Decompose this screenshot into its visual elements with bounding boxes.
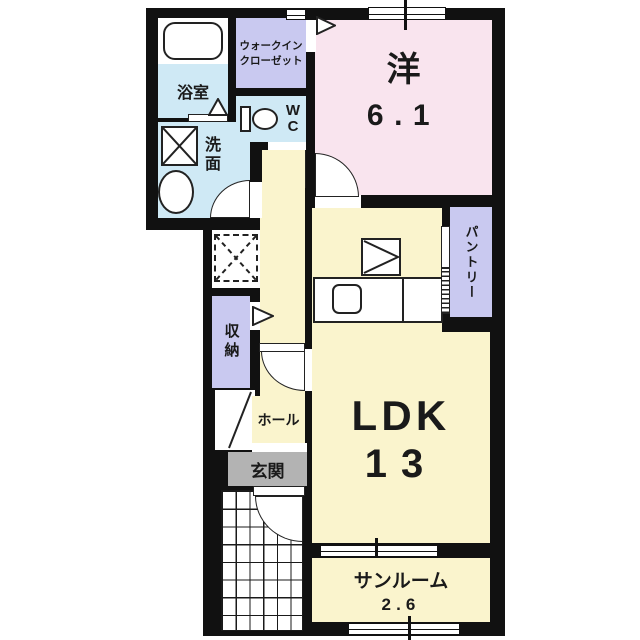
ldk-label-block: LDK 13 [312, 384, 490, 494]
sunroom-window-tick [408, 616, 411, 640]
entry-door-leaf [253, 486, 305, 496]
refrigerator-icon [361, 238, 401, 276]
entrance-label: 玄関 [251, 457, 285, 482]
sunroom-size: 2.6 [382, 595, 421, 615]
toilet-tank-icon [240, 106, 251, 132]
closet-doorway [306, 20, 316, 52]
western-room-label: 洋 [387, 42, 421, 91]
ldk-sunroom-window [320, 545, 438, 557]
walk-in-closet-label-1: ウォークイン [240, 38, 303, 53]
closet-folding-door-icon [316, 16, 336, 35]
storage-folding-door-icon [252, 306, 274, 326]
bathroom-folding-door-icon [208, 98, 228, 116]
washroom-doorway [250, 182, 262, 218]
toilet-label-c: C [288, 119, 299, 135]
room-walk-in-closet: ウォークイン クローゼット [236, 18, 306, 88]
western-room-size: 6.1 [367, 99, 440, 133]
sunroom-window [348, 623, 460, 635]
washing-machine-pan-icon [161, 126, 198, 166]
room-hall: ホール [252, 396, 305, 443]
bathtub-icon [163, 22, 223, 60]
pantry-label: パントリー [462, 225, 481, 300]
entrance-step [252, 443, 307, 452]
hall-label: ホール [258, 410, 300, 430]
toilet-bowl-icon [252, 108, 278, 130]
western-room-window-tick [404, 0, 407, 30]
closet-small-window [286, 9, 306, 20]
kitchen-sink-icon [332, 284, 362, 314]
dashed-storage-box [214, 234, 258, 282]
floor-plan: 浴室 洗面 ウォークイン クローゼット W C 収納 [0, 0, 640, 640]
storage-label: 収納 [221, 323, 242, 361]
room-sunroom: サンルーム 2.6 [312, 558, 490, 622]
pantry-accordion-door [441, 268, 450, 314]
walk-in-closet-label-2: クローゼット [240, 53, 303, 68]
room-pantry: パントリー [450, 207, 492, 317]
western-room-window [368, 7, 446, 20]
toilet-label: W C [283, 97, 303, 141]
room-storage: 収納 [212, 296, 250, 388]
toilet-label-w: W [286, 103, 300, 119]
kitchen-counter-divider [402, 279, 404, 321]
pantry-pass-through [441, 226, 450, 268]
stair-nook [215, 390, 255, 450]
ldk-label: LDK [352, 392, 451, 440]
ldk-size: 13 [365, 442, 438, 487]
corridor-upper [262, 150, 305, 218]
room-entrance: 玄関 [228, 452, 307, 486]
wash-basin-icon [158, 170, 194, 214]
bathroom-label: 浴室 [177, 79, 209, 103]
sunroom-label: サンルーム [354, 566, 448, 593]
